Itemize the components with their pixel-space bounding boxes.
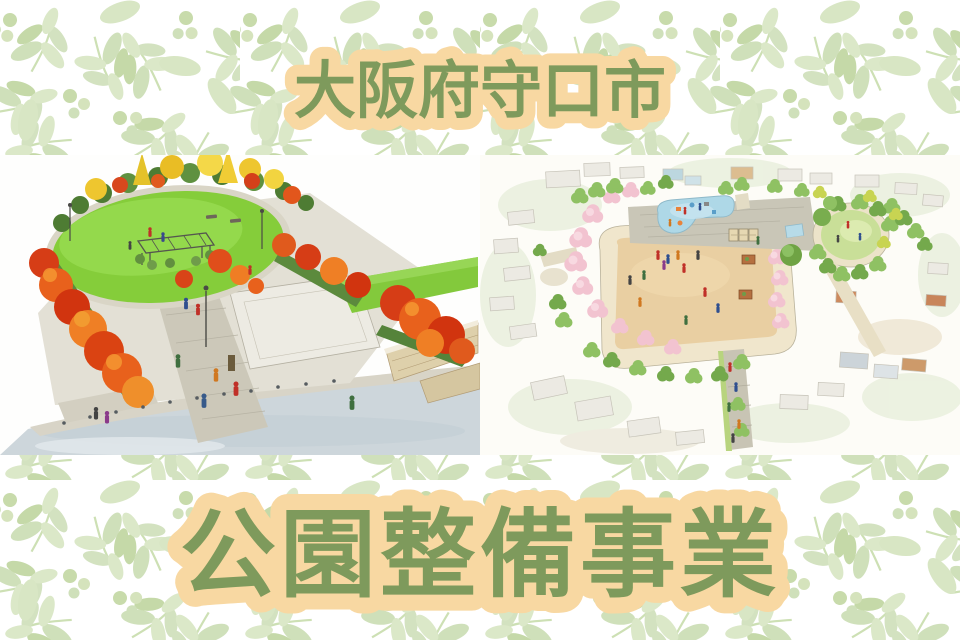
bottom-title-text: 公園整備事業 — [180, 499, 780, 611]
illustration-band — [0, 155, 960, 455]
signboard — [228, 355, 235, 371]
right-park-illustration — [480, 155, 960, 455]
bottom-title: 公園整備事業 — [0, 472, 960, 640]
top-title: 大阪府守口市 — [0, 18, 960, 148]
pavilion — [729, 229, 758, 241]
park-project-banner: { "banner": { "top_title": "大阪府守口市", "bo… — [0, 0, 960, 640]
top-title-text: 大阪府守口市 — [294, 54, 666, 127]
left-park-illustration — [0, 155, 480, 455]
water-slide-feature — [783, 224, 805, 244]
